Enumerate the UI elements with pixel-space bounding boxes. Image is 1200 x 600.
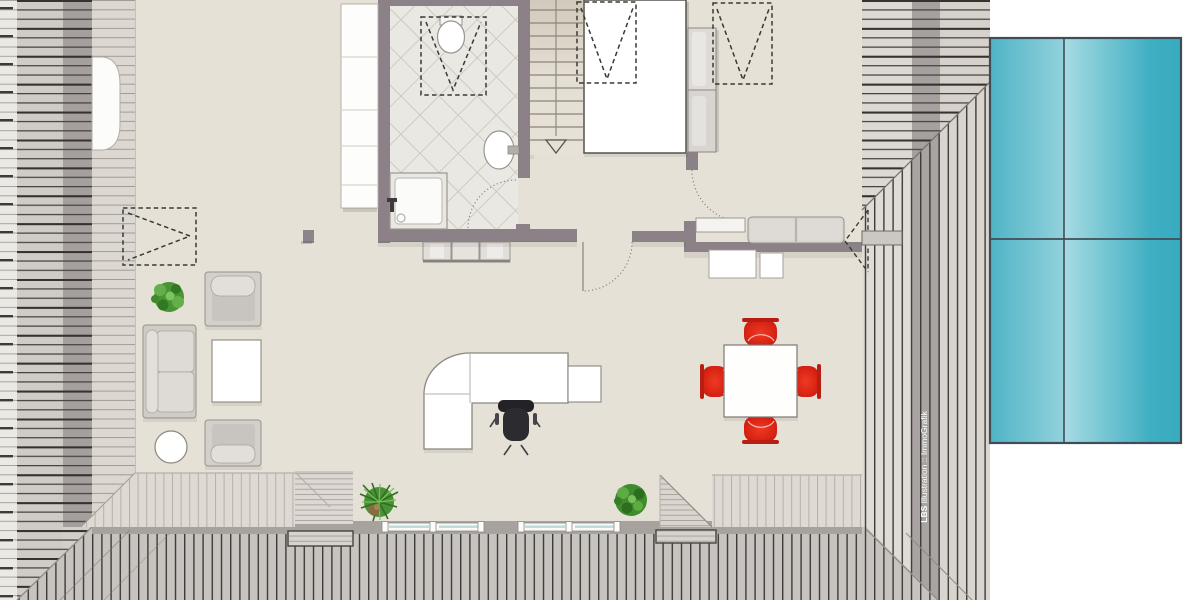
svg-text:LBS Illustration :: ImmoGrafik: LBS Illustration :: ImmoGrafik bbox=[919, 411, 929, 523]
